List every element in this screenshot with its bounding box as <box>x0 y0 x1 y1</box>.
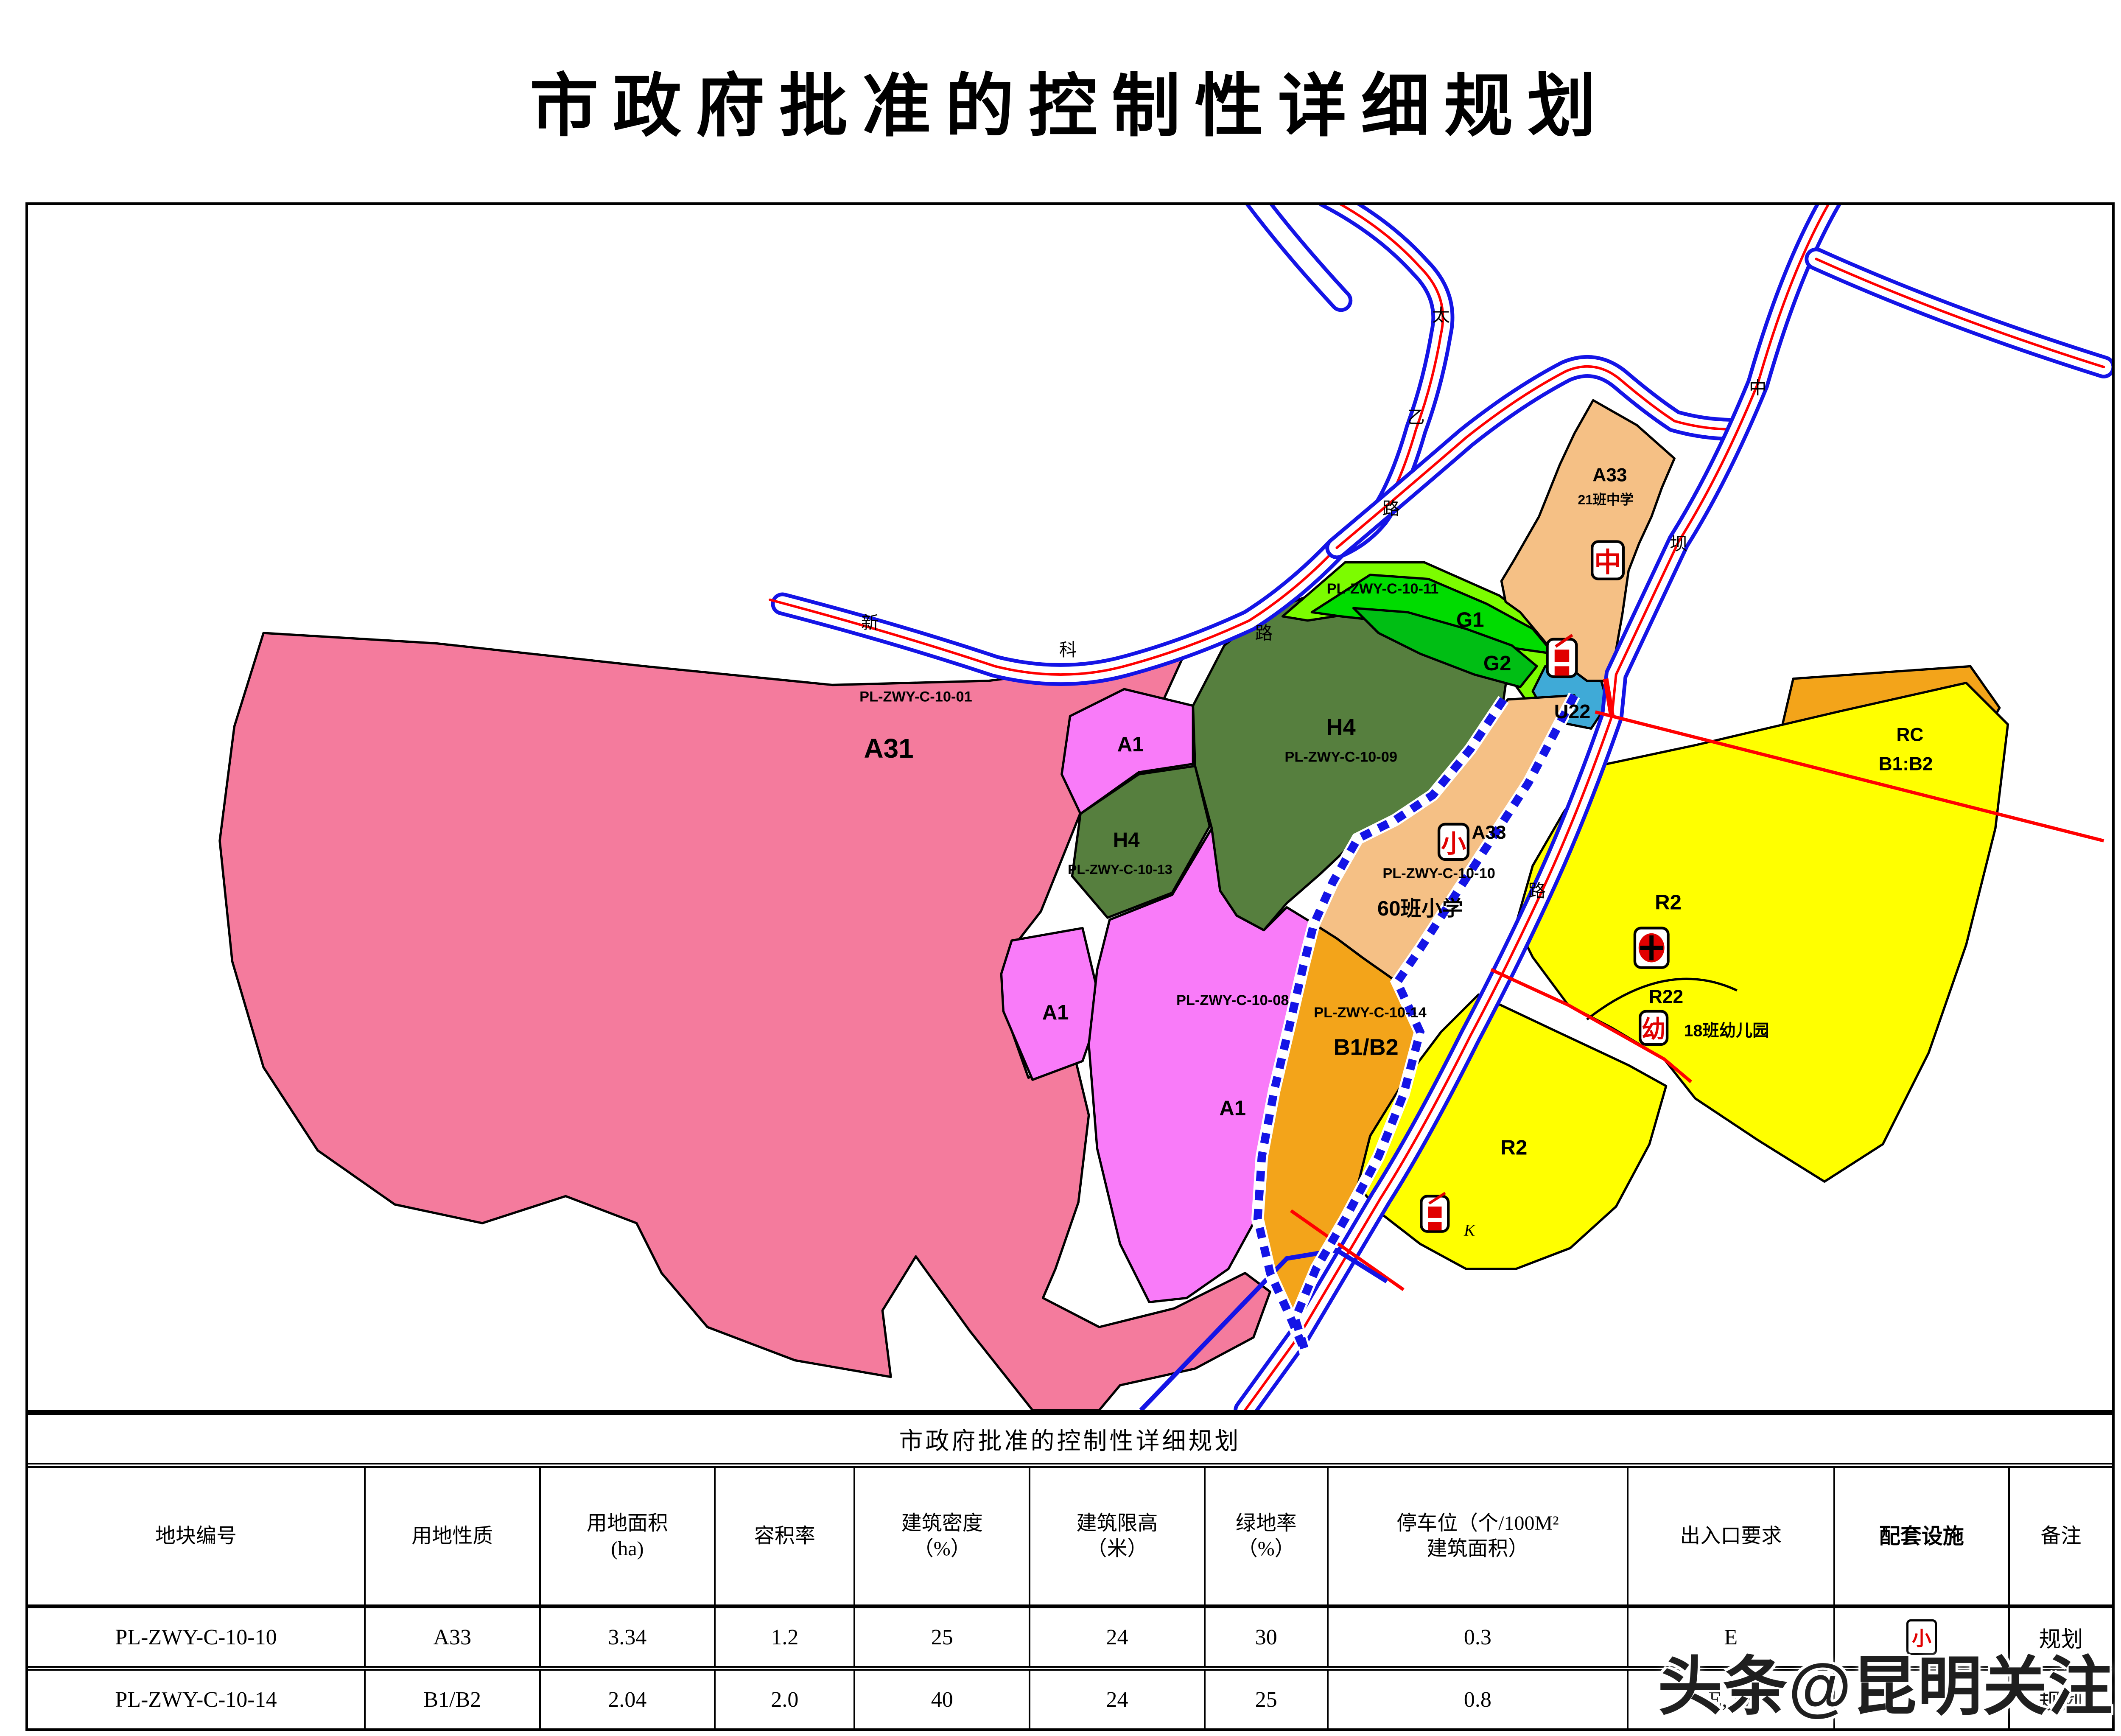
cell-height: 24 <box>1030 1671 1206 1728</box>
cell-green: 30 <box>1206 1608 1329 1666</box>
label-a1-upper: A1 <box>1117 733 1144 756</box>
label-a31-code: PL-ZWY-C-10-01 <box>859 689 972 705</box>
label-g1-code: PL-ZWY-C-10-11 <box>1327 581 1439 597</box>
label-b1b2: B1/B2 <box>1334 1034 1399 1060</box>
cell-far: 2.0 <box>716 1671 855 1728</box>
cell-green: 25 <box>1206 1671 1329 1728</box>
clinic-cross-icon <box>1635 928 1668 968</box>
svg-text:小: 小 <box>1441 830 1466 858</box>
label-r2-upper: R2 <box>1655 891 1682 914</box>
header-access: 出入口要求 <box>1629 1468 1835 1604</box>
label-u22: U22 <box>1554 700 1591 722</box>
label-r22-name: 18班幼儿园 <box>1684 1021 1769 1040</box>
cell-plot: PL-ZWY-C-10-10 <box>28 1608 366 1666</box>
table-header-row: 地块编号 用地性质 用地面积 (ha) 容积率 建筑密度 （%） 建筑限高 （米… <box>28 1468 2112 1608</box>
label-a33-ps-name: 60班小学 <box>1377 897 1463 920</box>
label-r22: R22 <box>1649 986 1683 1007</box>
header-plot-id: 地块编号 <box>28 1468 366 1604</box>
label-a31: A31 <box>864 733 913 764</box>
label-a33-ps: A33 <box>1472 822 1506 843</box>
label-a33-ms: A33 <box>1592 465 1627 486</box>
middle-school-icon: 中 <box>1592 542 1623 579</box>
kindergarten-icon: 幼 <box>1640 1011 1667 1044</box>
label-h4-small: H4 <box>1113 829 1140 852</box>
label-a1-big-code: PL-ZWY-C-10-08 <box>1176 992 1289 1008</box>
road-taiyi-char3: 路 <box>1382 499 1400 519</box>
svg-text:幼: 幼 <box>1642 1016 1666 1042</box>
road-branch-topleft <box>1254 205 1341 300</box>
road-zhongba-char3: 路 <box>1528 882 1546 901</box>
cell-parking: 0.8 <box>1329 1671 1629 1728</box>
label-a1-left: A1 <box>1042 1001 1069 1024</box>
cell-use: B1/B2 <box>366 1671 541 1728</box>
road-xinke-char2: 科 <box>1059 641 1077 660</box>
header-facilities: 配套设施 <box>1835 1468 2010 1604</box>
label-rc-sub: B1:B2 <box>1879 753 1933 774</box>
road-taiyi-char2: 乙 <box>1407 408 1425 427</box>
utility-facility-icon-r2 <box>1421 1193 1448 1232</box>
header-land-area: 用地面积 (ha) <box>541 1468 716 1604</box>
cell-density: 25 <box>855 1608 1030 1666</box>
header-note: 备注 <box>2010 1468 2112 1604</box>
label-a1-big: A1 <box>1219 1097 1246 1120</box>
primary-school-icon: 小 <box>1439 824 1468 860</box>
road-xinke-char1: 新 <box>861 613 879 633</box>
label-h4-big: H4 <box>1326 714 1356 740</box>
road-zhongba-char2: 坝 <box>1670 535 1687 554</box>
label-r2-lower: R2 <box>1501 1137 1528 1159</box>
map-canvas: 中 小 幼 PL-ZWY-C-10-01 A31 A1 H4 PL-ZWY-C-… <box>28 205 2112 1410</box>
cell-plot: PL-ZWY-C-10-14 <box>28 1671 366 1728</box>
label-g1: G1 <box>1456 608 1484 631</box>
road-zhongba-char1: 中 <box>1749 379 1767 398</box>
header-height-limit: 建筑限高 （米） <box>1030 1468 1206 1604</box>
cell-parking: 0.3 <box>1329 1608 1629 1666</box>
label-g2: G2 <box>1483 652 1511 675</box>
page-title: 市政府批准的控制性详细规划 <box>0 50 2121 150</box>
cell-area: 2.04 <box>541 1671 716 1728</box>
label-a33-ms-name: 21班中学 <box>1578 492 1633 507</box>
header-far: 容积率 <box>716 1468 855 1604</box>
cell-density: 40 <box>855 1671 1030 1728</box>
planning-map: 中 小 幼 PL-ZWY-C-10-01 A31 A1 H4 PL-ZWY-C-… <box>25 202 2115 1413</box>
label-b1b2-code: PL-ZWY-C-10-14 <box>1314 1005 1427 1021</box>
watermark: 头条@昆明关注 <box>1658 1634 2113 1728</box>
utility-facility-icon-u22 <box>1547 635 1577 677</box>
label-h4-big-code: PL-ZWY-C-10-09 <box>1284 749 1397 765</box>
road-xinke-char3: 路 <box>1255 624 1273 644</box>
header-land-use: 用地性质 <box>366 1468 541 1604</box>
svg-text:中: 中 <box>1594 547 1621 578</box>
header-building-density: 建筑密度 （%） <box>855 1468 1030 1604</box>
table-title: 市政府批准的控制性详细规划 <box>28 1415 2112 1468</box>
cell-use: A33 <box>366 1608 541 1666</box>
label-a33-ps-code: PL-ZWY-C-10-10 <box>1382 865 1495 882</box>
label-k-mark: K <box>1463 1221 1476 1240</box>
header-green-ratio: 绿地率 （%） <box>1206 1468 1329 1604</box>
cell-area: 3.34 <box>541 1608 716 1666</box>
road-taiyi-char1: 太 <box>1432 306 1450 325</box>
header-parking: 停车位（个/100M² 建筑面积） <box>1329 1468 1629 1604</box>
road-branch-topright <box>1816 259 2104 367</box>
cell-far: 1.2 <box>716 1608 855 1666</box>
cell-height: 24 <box>1030 1608 1206 1666</box>
label-h4-small-code: PL-ZWY-C-10-13 <box>1068 862 1172 877</box>
label-rc: RC <box>1897 725 1924 745</box>
